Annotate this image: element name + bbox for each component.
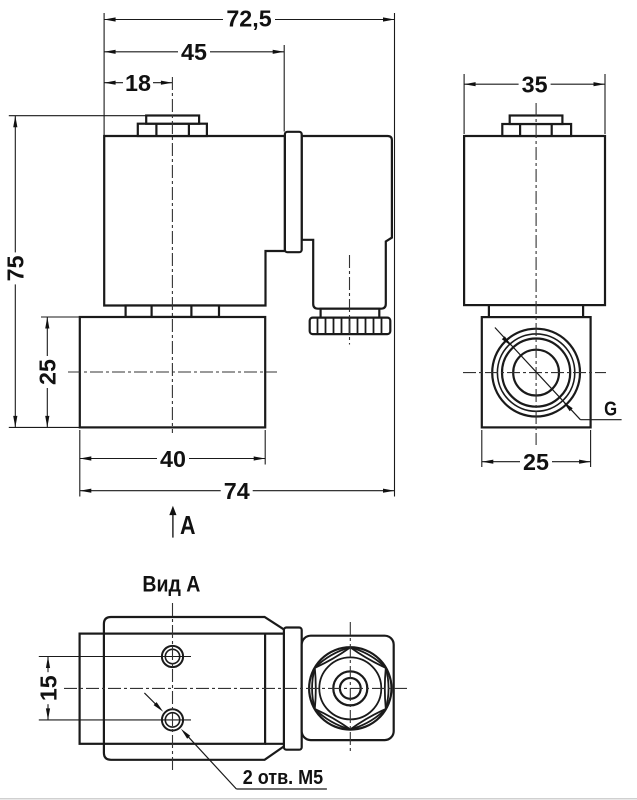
svg-text:18: 18 [125, 70, 151, 96]
svg-text:35: 35 [522, 72, 548, 98]
svg-text:15: 15 [35, 675, 61, 701]
svg-text:75: 75 [3, 255, 29, 281]
svg-text:74: 74 [224, 478, 250, 504]
svg-text:45: 45 [181, 39, 207, 65]
svg-text:G: G [604, 397, 617, 420]
svg-text:Вид А: Вид А [142, 571, 200, 596]
svg-text:72,5: 72,5 [226, 6, 271, 32]
svg-text:40: 40 [160, 446, 186, 472]
svg-text:А: А [180, 510, 196, 540]
svg-text:25: 25 [523, 449, 549, 475]
svg-text:2 отв. М5: 2 отв. М5 [243, 767, 324, 789]
svg-text:25: 25 [35, 359, 61, 385]
